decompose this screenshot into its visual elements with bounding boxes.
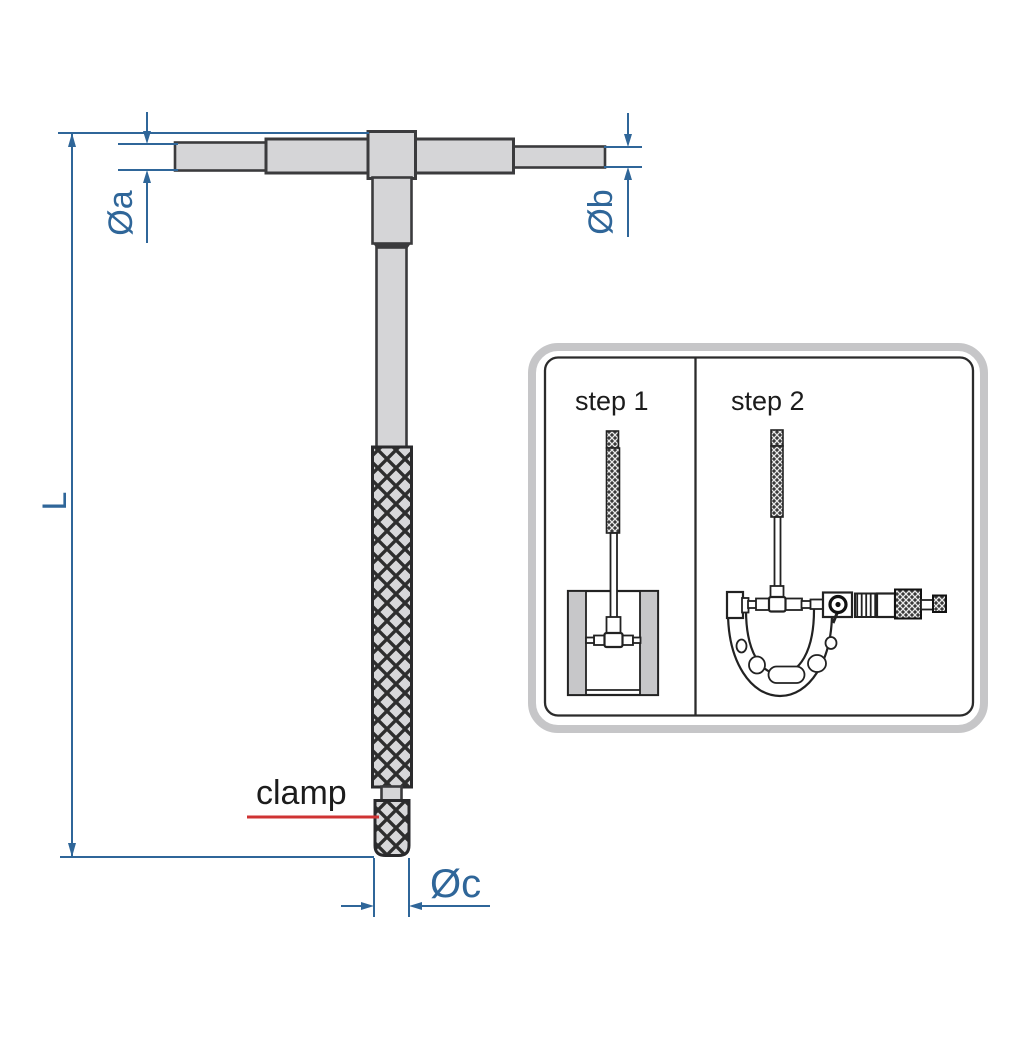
- ratchet-knurl: [895, 590, 921, 619]
- frame-hole-2: [749, 657, 765, 674]
- left-plunger-rod: [175, 143, 268, 171]
- center-block: [368, 132, 416, 179]
- dimension-dia-c: Øc: [341, 858, 490, 917]
- mini-gauge-tip-right: [633, 638, 641, 644]
- right-sleeve: [415, 139, 514, 173]
- step2-label: step 2: [731, 386, 805, 416]
- gauge2-t-block: [769, 597, 786, 612]
- mini-gauge-arm-left: [594, 636, 605, 646]
- bore-wall-left: [568, 591, 586, 695]
- thimble-knurl: [855, 594, 877, 618]
- frame-hole-1: [737, 640, 747, 653]
- clamp-neck: [382, 787, 402, 801]
- mini-gauge-tip-left: [586, 638, 594, 644]
- frame-hole-4: [826, 637, 837, 649]
- dim-c-label: Øc: [430, 862, 481, 906]
- mini-gauge-collar: [607, 617, 621, 633]
- anvil-block: [727, 592, 743, 618]
- clamp-label: clamp: [256, 774, 347, 812]
- mini-gauge-handle: [607, 448, 620, 533]
- dim-b-arrow-down: [624, 134, 632, 147]
- dim-b-arrow-up: [624, 167, 632, 180]
- telescoping-gauge-diagram: L Øa Øb Øc clamp ste: [0, 0, 1032, 1032]
- diagram-canvas: L Øa Øb Øc clamp ste: [0, 0, 1032, 1032]
- gauge2-handle: [771, 446, 783, 517]
- dim-c-arrow-right: [361, 902, 374, 910]
- dim-c-arrow-left: [409, 902, 422, 910]
- collar: [373, 178, 412, 244]
- lock-dot: [835, 602, 840, 607]
- ratchet-shaft: [921, 600, 933, 610]
- frame-slot: [769, 667, 805, 684]
- dimension-dia-a: Øa: [102, 112, 178, 243]
- dim-L-label: L: [36, 492, 74, 511]
- knurled-handle: [373, 447, 412, 787]
- step1-label: step 1: [575, 386, 649, 416]
- mini-gauge-t-block: [605, 633, 623, 647]
- spindle-rod: [811, 600, 824, 610]
- gauge2-tip-right: [802, 601, 812, 608]
- dimension-L: L: [36, 133, 374, 857]
- dim-L-arrow-down: [68, 843, 76, 857]
- right-plunger-rod: [512, 147, 605, 168]
- left-sleeve: [266, 139, 369, 173]
- shaft: [377, 248, 407, 448]
- mini-gauge-knob: [607, 431, 619, 448]
- frame-hole-3: [808, 655, 826, 672]
- dim-a-arrow-down: [143, 131, 151, 144]
- dim-b-label: Øb: [582, 189, 620, 234]
- clamp-knob: [375, 801, 409, 856]
- dim-L-arrow-up: [68, 133, 76, 147]
- inset-box: step 1 step 2: [532, 347, 984, 729]
- gauge2-knob: [771, 430, 783, 446]
- gauge2-arm-right: [786, 599, 803, 611]
- thimble-sleeve: [877, 594, 895, 618]
- gauge2-shaft: [775, 517, 781, 588]
- bore-wall-right: [640, 591, 658, 695]
- mini-gauge-shaft: [611, 533, 618, 618]
- dim-a-label: Øa: [102, 190, 140, 235]
- ratchet-end-cap: [933, 596, 946, 613]
- dimension-dia-b: Øb: [582, 113, 642, 237]
- dim-a-arrow-up: [143, 170, 151, 183]
- clamp-annotation: clamp: [247, 774, 379, 817]
